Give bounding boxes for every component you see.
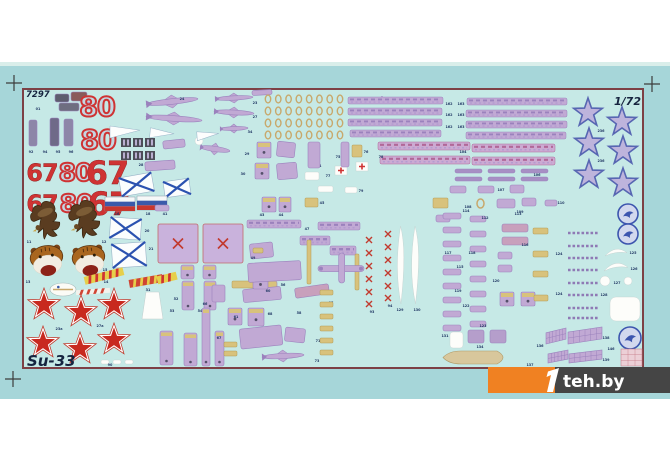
part-number-label: 30	[241, 172, 246, 176]
part-number-label: 31	[146, 288, 151, 292]
warning-oval-decal	[50, 283, 76, 296]
vent-grille-decal	[145, 138, 155, 147]
vent-grille-decal	[133, 138, 143, 147]
svg-text:73: 73	[315, 359, 320, 363]
naval-aviation-crest-decal	[619, 327, 641, 349]
svg-text:93: 93	[370, 310, 375, 314]
svg-text:49: 49	[251, 256, 256, 260]
part-number-label: 94	[43, 150, 48, 154]
svg-text:114: 114	[462, 209, 470, 213]
svg-text:78: 78	[379, 155, 384, 159]
part-number-label: 52	[174, 297, 179, 301]
walkway-strip-decal	[348, 119, 442, 126]
ejection-seat-decal	[279, 197, 291, 212]
part-number-label: 123	[479, 324, 487, 328]
part-number-label: 01	[36, 107, 41, 111]
tan-stencil-decal	[533, 271, 548, 277]
walkway-strip-decal	[300, 236, 330, 245]
stencil-decal	[545, 200, 557, 206]
part-number-label: 79	[359, 189, 364, 193]
tan-stencil-decal	[224, 351, 237, 356]
part-number-label: 18	[146, 212, 151, 216]
svg-text:24: 24	[180, 97, 185, 101]
stencil-decal	[478, 186, 494, 193]
part-number-label: 27a	[96, 324, 104, 328]
ejection-seat-decal	[262, 197, 276, 212]
stencil-decal	[498, 252, 512, 259]
svg-text:68: 68	[268, 312, 273, 316]
maintenance-square-decal	[158, 224, 198, 263]
svg-text:34: 34	[248, 130, 253, 134]
svg-text:13: 13	[26, 280, 31, 284]
stencil-decal	[443, 269, 461, 275]
walkway-strip-decal	[378, 142, 470, 150]
part-number-label: 162	[445, 125, 453, 129]
walkway-strip-decal	[467, 98, 567, 105]
stencil-decal	[510, 185, 524, 193]
svg-text:110: 110	[557, 201, 565, 205]
svg-text:92: 92	[29, 150, 34, 154]
part-number-label: 104	[459, 150, 467, 154]
stencil-decal	[239, 325, 283, 349]
svg-text:123: 123	[479, 324, 487, 328]
naval-aviation-crest-decal	[618, 224, 638, 244]
svg-text:138: 138	[602, 336, 610, 340]
stencil-decal	[212, 285, 225, 302]
pink-structure-decal	[621, 349, 642, 366]
svg-text:60: 60	[266, 289, 271, 293]
part-number-label: 11	[27, 240, 32, 244]
fin-stencil-decal	[181, 265, 194, 279]
tan-stencil-decal	[224, 342, 237, 347]
svg-text:47: 47	[305, 227, 310, 231]
white-patch-decal	[610, 297, 640, 321]
stencil-decal	[470, 231, 486, 237]
part-number-label: 118	[468, 251, 476, 255]
ejection-seat-decal	[521, 292, 535, 306]
svg-text:113: 113	[514, 212, 522, 216]
fin-stencil-decal	[182, 281, 194, 310]
part-number-label: 95	[56, 150, 61, 154]
part-number-label: 60	[266, 289, 271, 293]
part-number-label: 73	[315, 359, 320, 363]
walkway-strip-decal	[318, 222, 360, 230]
svg-text:41: 41	[163, 212, 168, 216]
part-number-label: 137	[526, 363, 534, 367]
svg-text:61: 61	[234, 315, 239, 319]
vent-grille-decal	[133, 151, 143, 160]
part-number-label: 130	[413, 308, 421, 312]
part-number-label: 27	[253, 115, 258, 119]
fin-stencil-decal	[202, 308, 210, 366]
tan-stencil-decal	[534, 295, 548, 301]
svg-text:131: 131	[441, 334, 449, 338]
svg-text:77: 77	[326, 174, 331, 178]
stencil-decal	[341, 142, 349, 167]
svg-text:52: 52	[174, 297, 179, 301]
stencil-decal	[155, 205, 169, 211]
stencil-decal	[490, 330, 506, 343]
svg-text:94: 94	[43, 150, 48, 154]
part-number-label: 134	[476, 345, 484, 349]
stencil-decal	[450, 186, 466, 193]
ejection-seat-decal	[500, 292, 514, 306]
part-number-label: 162	[445, 102, 453, 106]
svg-text:80: 80	[79, 92, 115, 123]
part-number-label: 129	[396, 308, 404, 312]
tan-stencil-decal	[307, 240, 311, 284]
white-dot-decal	[624, 277, 632, 285]
stencil-decal	[443, 325, 461, 331]
svg-text:67: 67	[217, 336, 222, 340]
part-number-label: 90	[108, 363, 113, 367]
part-number-label: 14	[104, 280, 109, 284]
white-dot-decal	[600, 276, 610, 286]
svg-text:115: 115	[456, 265, 464, 269]
st-andrew-navy-flag-decal	[163, 178, 191, 197]
part-number-label: 136	[536, 344, 544, 348]
svg-text:134: 134	[476, 345, 484, 349]
walkway-strip-decal	[247, 220, 301, 228]
canopy-white-decal	[142, 292, 163, 319]
product-photo: 0180806780676780679294959628242327341621…	[0, 0, 670, 471]
svg-text:122: 122	[462, 304, 470, 308]
stencil-decal	[443, 255, 461, 261]
walkway-strip-decal	[472, 157, 555, 165]
walkway-strip-decal	[348, 108, 442, 115]
svg-text:21: 21	[149, 247, 154, 251]
svg-text:75: 75	[336, 155, 341, 159]
stencil-decal	[488, 169, 515, 173]
part-number-label: 125	[629, 251, 637, 255]
svg-text:67: 67	[26, 159, 57, 187]
part-number-label: 58	[297, 311, 302, 315]
svg-text:146: 146	[607, 347, 615, 351]
svg-text:118: 118	[468, 251, 476, 255]
stencil-decal	[443, 297, 461, 303]
part-number-label: 128	[600, 293, 608, 297]
svg-text:76: 76	[364, 150, 369, 154]
svg-text:43: 43	[260, 213, 265, 217]
stencil-decal	[59, 103, 79, 111]
stencil-decal	[521, 177, 548, 181]
part-number-label: 16	[115, 212, 120, 216]
part-number-label: 124	[555, 252, 563, 256]
stencil-decal	[443, 311, 461, 317]
part-number-label: 96	[69, 150, 74, 154]
part-number-label: 66	[203, 302, 208, 306]
svg-text:95: 95	[56, 150, 61, 154]
svg-text:20: 20	[145, 229, 150, 233]
st-andrew-navy-flag-decal	[111, 242, 147, 268]
walkway-strip-decal	[466, 132, 566, 139]
svg-text:129: 129	[396, 308, 404, 312]
stencil-decal	[443, 213, 461, 219]
part-number-label: 124	[555, 292, 563, 296]
svg-text:130: 130	[413, 308, 421, 312]
part-number-label: 162	[445, 113, 453, 117]
tan-stencil-decal	[533, 228, 548, 234]
svg-text:15: 15	[103, 268, 108, 272]
tan-stencil-decal	[320, 314, 333, 319]
part-number-label: 146	[607, 347, 615, 351]
part-number-label: 163	[457, 125, 465, 129]
part-number-label: 67	[217, 336, 222, 340]
tan-stencil-decal	[320, 290, 333, 295]
watermark-orange-block	[488, 367, 555, 393]
maintenance-square-decal	[203, 224, 243, 263]
part-number-label: 106	[533, 173, 541, 177]
part-number-label: 61	[234, 315, 239, 319]
svg-text:127: 127	[613, 281, 621, 285]
part-number-label: 12	[102, 240, 107, 244]
svg-text:236: 236	[597, 129, 605, 133]
svg-text:27: 27	[253, 115, 258, 119]
stencil-decal	[308, 142, 320, 168]
svg-text:163: 163	[457, 125, 465, 129]
white-patch-decal	[113, 360, 121, 364]
part-number-label: 20	[145, 229, 150, 233]
photo-highlight-strip	[0, 62, 670, 66]
photo-canvas: 0180806780676780679294959628242327341621…	[0, 0, 670, 471]
tan-stencil-decal	[320, 338, 333, 343]
svg-text:117: 117	[444, 251, 452, 255]
svg-text:112: 112	[481, 216, 489, 220]
tan-stencil-decal	[433, 198, 448, 208]
part-number-label: 76	[364, 150, 369, 154]
part-number-label: 94	[388, 304, 393, 308]
svg-text:125: 125	[629, 251, 637, 255]
part-number-label: 34	[248, 130, 253, 134]
part-number-label: 163	[457, 113, 465, 117]
stencil-decal	[522, 198, 536, 206]
walkway-strip-decal	[348, 97, 443, 104]
white-patch-decal	[125, 360, 133, 364]
part-number-label: 127	[613, 281, 621, 285]
svg-text:137: 137	[526, 363, 534, 367]
svg-text:45: 45	[320, 201, 325, 205]
part-number-label: 53	[170, 309, 175, 313]
svg-text:116: 116	[521, 243, 529, 247]
sheet-code: 7297	[26, 90, 50, 100]
part-number-label: 114	[462, 209, 470, 213]
svg-text:163: 163	[457, 113, 465, 117]
svg-text:94: 94	[388, 304, 393, 308]
part-number-label: 236	[597, 159, 605, 163]
stencil-decal	[284, 327, 305, 343]
russian-tricolor-flag-decal	[105, 197, 135, 211]
stencil-decal	[276, 141, 295, 158]
st-andrew-navy-flag-decal	[109, 217, 141, 240]
part-number-label: 45	[320, 201, 325, 205]
part-number-label: 56	[281, 283, 286, 287]
svg-text:124: 124	[555, 252, 563, 256]
tan-stencil-decal	[320, 350, 333, 355]
svg-text:79: 79	[359, 189, 364, 193]
part-number-label: 139	[602, 358, 610, 362]
part-number-label: 41	[163, 212, 168, 216]
part-number-label: 93	[370, 310, 375, 314]
fin-stencil-decal	[184, 333, 197, 366]
part-number-label: 21	[149, 247, 154, 251]
part-number-label: 15	[103, 268, 108, 272]
part-number-label: 110	[557, 201, 565, 205]
stencil-decal	[64, 119, 73, 146]
stencil-decal	[443, 227, 461, 233]
svg-text:128: 128	[600, 293, 608, 297]
svg-text:162: 162	[445, 102, 453, 106]
part-number-label: 78	[379, 155, 384, 159]
part-number-label: 120	[492, 279, 500, 283]
naval-aviation-crest-decal	[618, 204, 638, 224]
svg-text:14: 14	[104, 280, 109, 284]
svg-text:58: 58	[297, 311, 302, 315]
svg-text:30: 30	[241, 172, 246, 176]
part-number-label: 138	[602, 336, 610, 340]
part-number-label: 23a	[55, 327, 63, 331]
white-patch-decal	[450, 332, 463, 348]
vent-grille-decal	[145, 151, 155, 160]
stencil-decal	[502, 224, 528, 232]
part-number-label: 236	[597, 129, 605, 133]
stencil-decal	[443, 241, 461, 247]
part-number-label: 116	[521, 243, 529, 247]
part-number-label: 44	[279, 213, 284, 217]
part-number-label: 117	[444, 251, 452, 255]
part-number-label: 49	[251, 256, 256, 260]
part-number-label: 131	[441, 334, 449, 338]
part-number-label: 47	[305, 227, 310, 231]
fin-stencil-decal	[203, 265, 216, 279]
part-number-label: 119	[454, 289, 462, 293]
svg-text:162: 162	[445, 113, 453, 117]
stencil-decal	[468, 330, 484, 343]
tan-stencil-decal	[533, 251, 548, 257]
drop-tank-decal	[443, 351, 503, 364]
part-number-label: 122	[462, 304, 470, 308]
svg-text:126: 126	[630, 267, 638, 271]
walkway-strip-decal	[466, 121, 567, 128]
svg-text:44: 44	[279, 213, 284, 217]
part-number-label: 43	[260, 213, 265, 217]
part-number-label: 77	[326, 174, 331, 178]
svg-text:124: 124	[555, 292, 563, 296]
part-number-label: 13	[26, 280, 31, 284]
svg-text:119: 119	[454, 289, 462, 293]
watermark: teh.by	[488, 367, 670, 393]
svg-text:16: 16	[115, 212, 120, 216]
part-number-label: 92	[29, 150, 34, 154]
part-number-label: 29	[245, 152, 250, 156]
outlined-number-decal: 80	[79, 92, 115, 123]
stencil-decal	[488, 177, 515, 181]
stencil-decal	[248, 261, 302, 283]
red-number-decal: 67	[26, 159, 57, 187]
svg-text:11: 11	[27, 240, 32, 244]
svg-text:29: 29	[245, 152, 250, 156]
svg-text:01: 01	[36, 107, 41, 111]
part-number-label: 68	[268, 312, 273, 316]
svg-text:106: 106	[533, 173, 541, 177]
stencil-decal	[55, 94, 69, 102]
first-aid-cross-decal	[356, 162, 368, 171]
svg-text:23: 23	[253, 101, 258, 105]
part-number-label: 126	[630, 267, 638, 271]
vent-grille-decal	[121, 138, 131, 147]
vent-grille-decal	[121, 151, 131, 160]
part-number-label: 112	[481, 216, 489, 220]
stencil-decal	[470, 291, 486, 297]
ejection-seat-decal	[255, 163, 269, 179]
tan-stencil-decal	[305, 198, 318, 207]
svg-text:31: 31	[146, 288, 151, 292]
stencil-decal	[470, 276, 486, 282]
white-patch-decal	[318, 186, 333, 192]
svg-text:120: 120	[492, 279, 500, 283]
stencil-decal	[497, 199, 515, 208]
tan-stencil-decal	[253, 248, 263, 253]
tan-stencil-decal	[320, 302, 333, 307]
stencil-decal	[276, 162, 297, 180]
white-patch-decal	[305, 172, 319, 180]
svg-text:53: 53	[170, 309, 175, 313]
part-number-label: 28	[139, 163, 144, 167]
fin-stencil-decal	[160, 331, 173, 365]
svg-text:90: 90	[108, 363, 113, 367]
stencil-decal	[470, 306, 486, 312]
svg-text:139: 139	[602, 358, 610, 362]
stencil-decal	[29, 120, 37, 146]
part-number-label: 75	[336, 155, 341, 159]
part-number-label: 115	[456, 265, 464, 269]
part-number-label: 113	[514, 212, 522, 216]
svg-text:96: 96	[69, 150, 74, 154]
ejection-seat-decal	[248, 308, 264, 326]
sheet-title: Su-33	[27, 352, 76, 370]
svg-text:236: 236	[597, 159, 605, 163]
svg-text:18: 18	[146, 212, 151, 216]
ejection-seat-decal	[257, 142, 271, 158]
part-number-label: 107	[497, 188, 505, 192]
svg-text:66: 66	[203, 302, 208, 306]
stencil-decal	[470, 261, 486, 267]
svg-text:56: 56	[281, 283, 286, 287]
watermark-text: teh.by	[563, 372, 624, 392]
stencil-decal	[145, 160, 176, 171]
svg-text:23a: 23a	[55, 327, 63, 331]
stencil-decal	[50, 118, 59, 146]
walkway-strip-decal	[466, 110, 567, 117]
first-aid-cross-decal	[335, 166, 347, 175]
svg-text:136: 136	[536, 344, 544, 348]
svg-text:27a: 27a	[96, 324, 104, 328]
stencil-decal	[455, 177, 482, 181]
svg-text:107: 107	[497, 188, 505, 192]
part-number-label: 24	[180, 97, 185, 101]
svg-text:162: 162	[445, 125, 453, 129]
svg-text:163: 163	[457, 102, 465, 106]
svg-text:28: 28	[139, 163, 144, 167]
tan-stencil-decal	[320, 326, 333, 331]
white-patch-decal	[345, 187, 357, 193]
stencil-decal	[498, 265, 512, 272]
svg-text:104: 104	[459, 150, 467, 154]
part-number-label: 163	[457, 102, 465, 106]
tan-stencil-decal	[355, 254, 359, 290]
walkway-strip-decal	[472, 144, 555, 152]
sheet-scale: 1/72	[614, 95, 641, 108]
svg-text:12: 12	[102, 240, 107, 244]
